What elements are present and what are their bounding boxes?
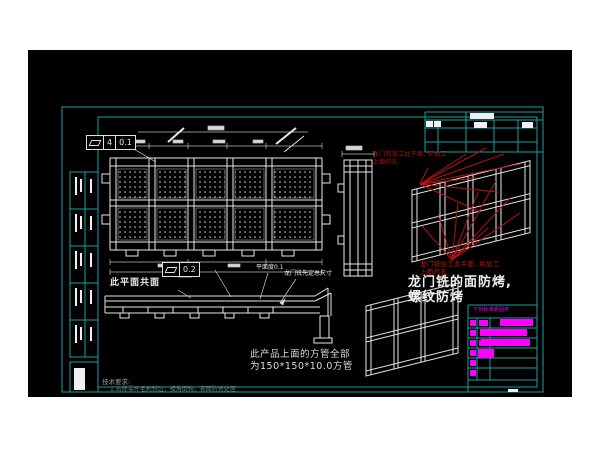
square-tube-note-line1: 此产品上面的方管全部 — [250, 350, 350, 361]
milled-face-note-line1: 龙门铣的面防烤, — [408, 276, 512, 291]
drawing-canvas: 4 0.1 0.2 此平面共面 平面度0.1 龙门铣先定总尺寸 龙门铣加工此平面… — [28, 50, 572, 397]
square-tube-note-line2: 为150*150*10.0方管 — [250, 362, 353, 373]
side-elevation-view — [105, 288, 332, 343]
drawing-linework — [28, 50, 572, 397]
plan-view-perforated-panels — [118, 169, 314, 240]
gdt-top-value-1: 4 — [103, 136, 115, 149]
red-note-top-line2: 上面的孔 — [373, 160, 398, 167]
tech-requirements-item: 1.去除零件毛刺锐边，棱角倒钝，表面防锈处理 — [110, 387, 236, 394]
coplanar-label: 此平面共面 — [110, 278, 160, 288]
section-view — [338, 160, 372, 276]
red-machining-leaders — [420, 148, 520, 260]
fastener-table-header: 下列标准紧固件 — [473, 308, 509, 314]
gantry-total-dim-label: 龙门铣先定总尺寸 — [284, 271, 332, 278]
flatness-symbol-icon — [163, 263, 179, 276]
milled-face-note-line2: 螺纹防烤 — [408, 291, 464, 306]
red-note-top-line1: 龙门铣加工此平面, 并加工 — [373, 152, 447, 159]
section-view-dimension — [342, 146, 374, 157]
gdt-frame-mid: 0.2 — [162, 262, 200, 277]
plan-view-dimensions — [110, 126, 322, 277]
gdt-frame-top: 4 0.1 — [86, 135, 136, 150]
cad-drawing-viewport: 4 0.1 0.2 此平面共面 平面度0.1 龙门铣先定总尺寸 龙门铣加工此平面… — [0, 0, 600, 450]
flatness-label: 平面度0.1 — [256, 265, 284, 272]
plan-view-leaders — [132, 128, 304, 162]
gdt-mid-value: 0.2 — [179, 263, 199, 276]
gdt-top-value-2: 0.1 — [115, 136, 135, 149]
flatness-symbol-icon — [87, 136, 103, 149]
